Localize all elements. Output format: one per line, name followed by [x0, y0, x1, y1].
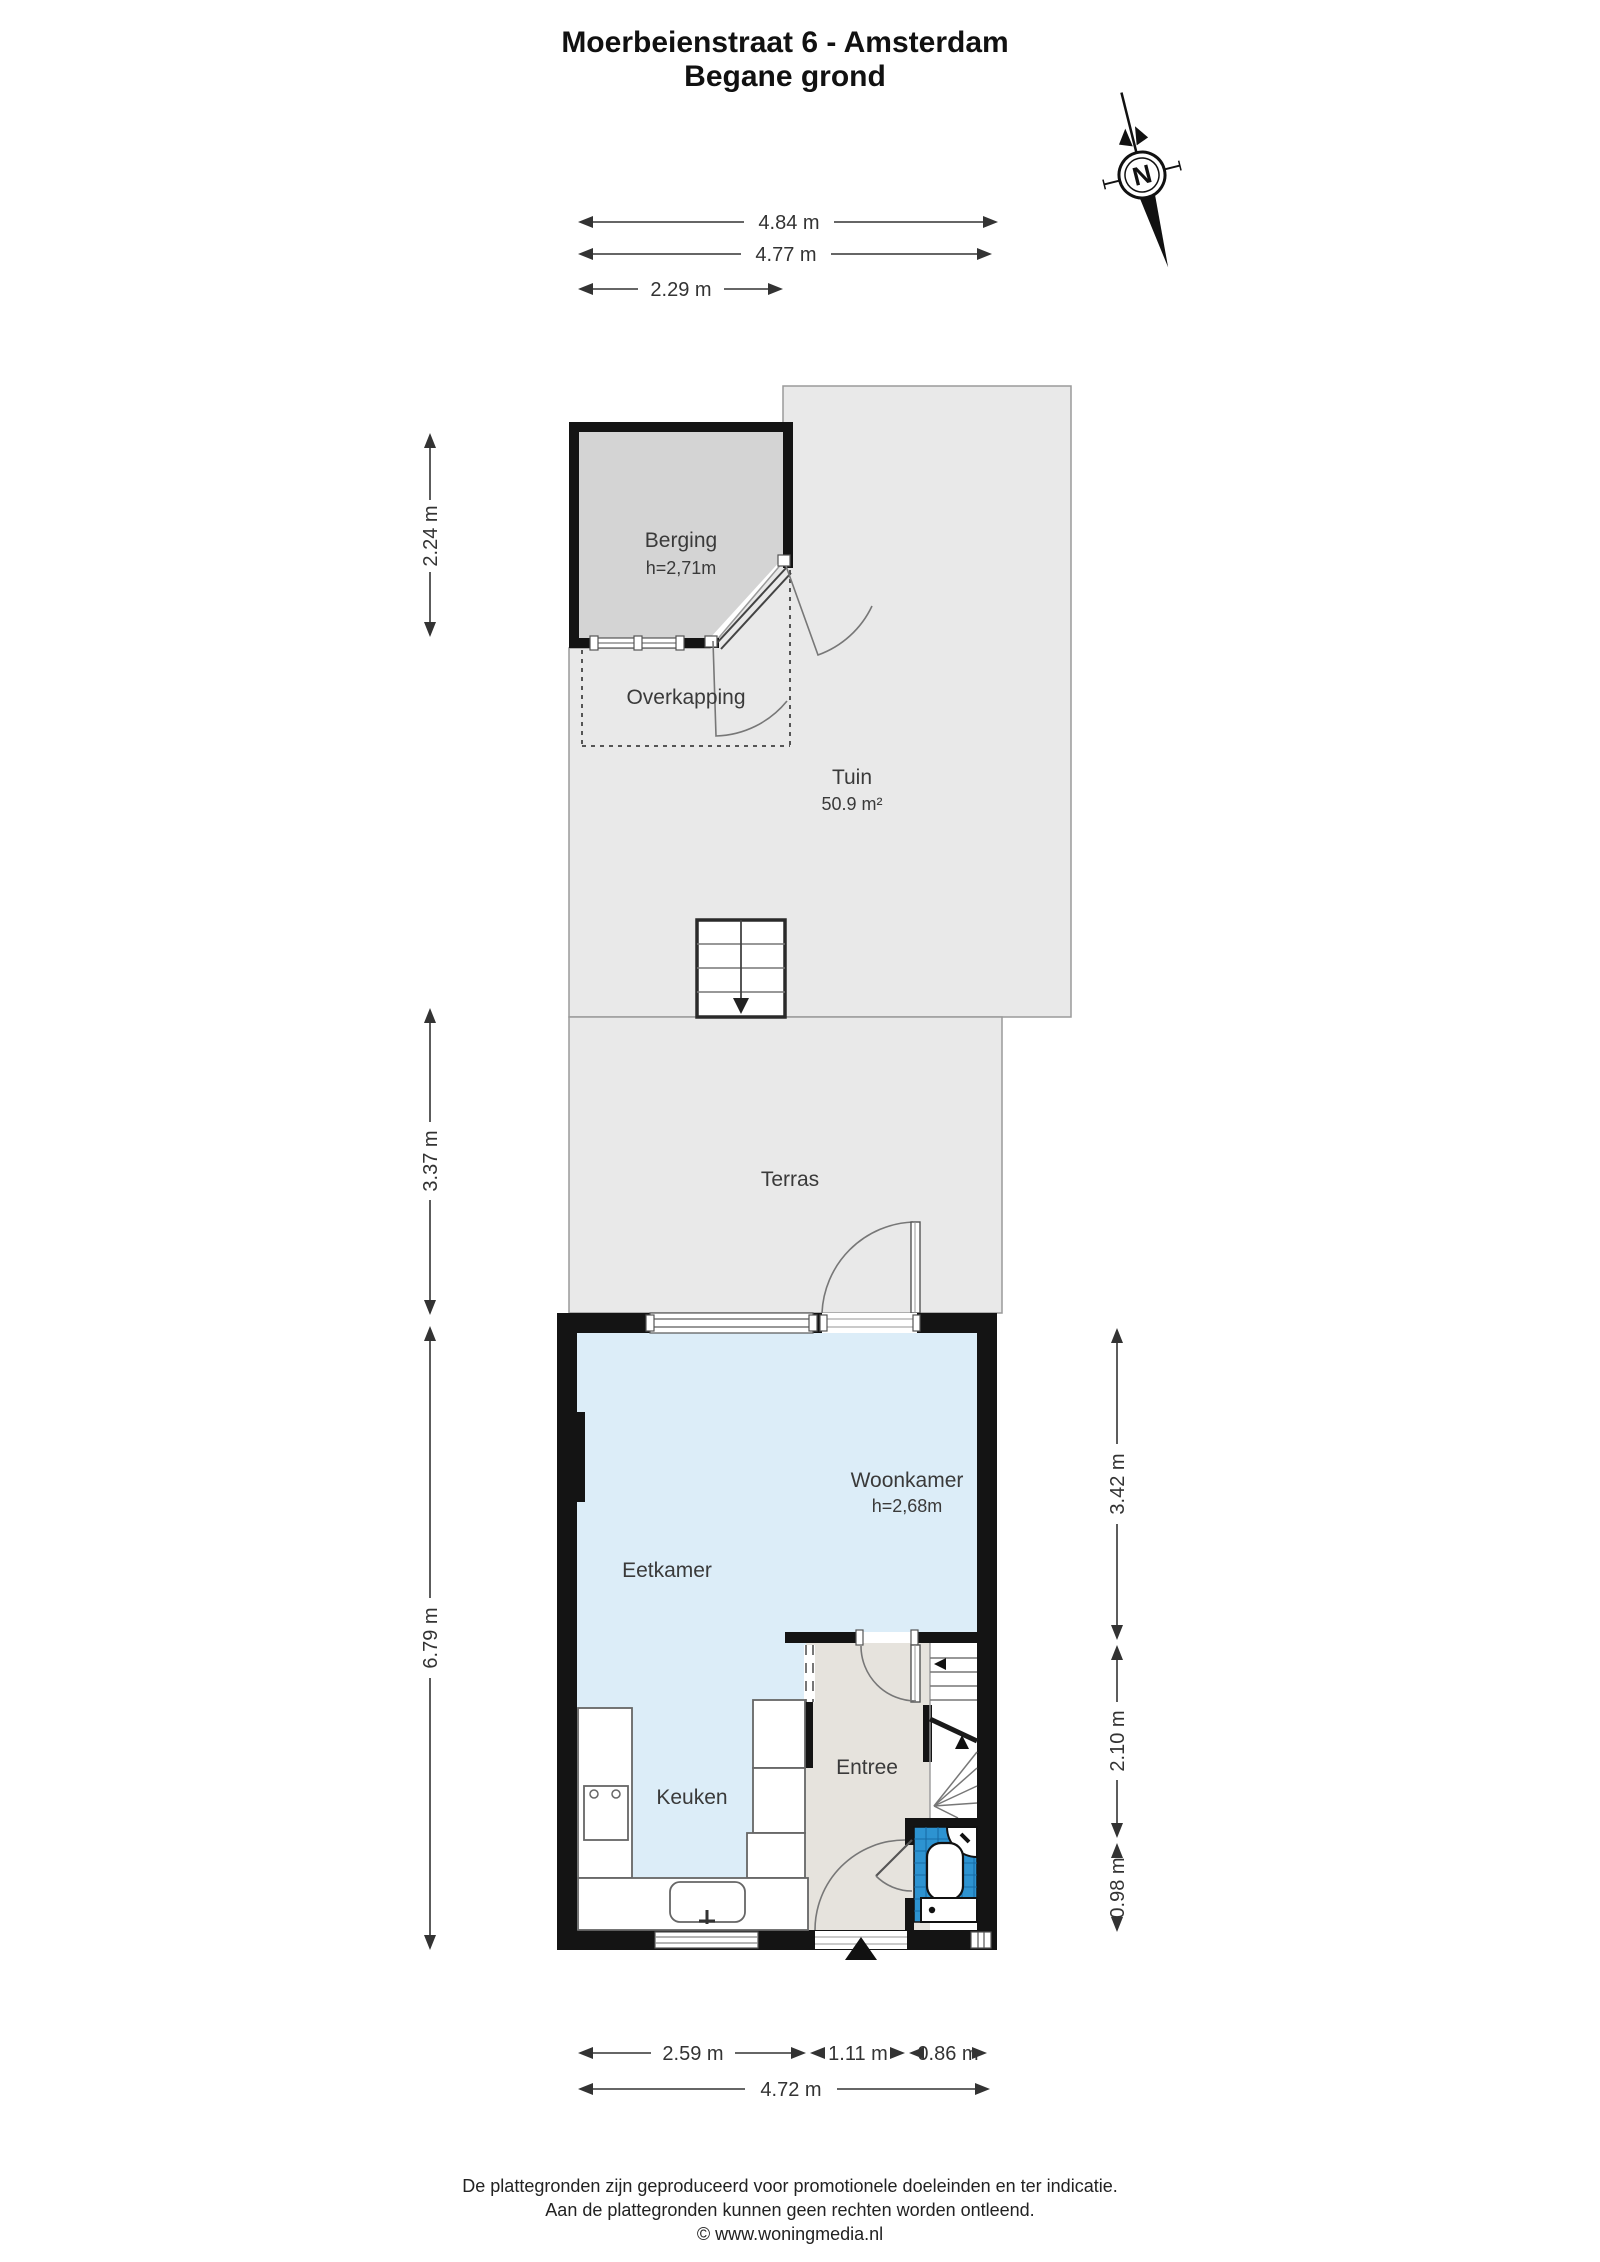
title-line1: Moerbeienstraat 6 - Amsterdam	[561, 26, 1008, 59]
garden-steps	[697, 920, 785, 1017]
hall-wall	[785, 1630, 997, 1645]
label-overkapping: Overkapping	[626, 686, 745, 709]
dim-bottom-2-59: 2.59 m	[578, 2043, 806, 2065]
dim-label: 0.86 m	[917, 2043, 978, 2065]
berging-window	[590, 636, 684, 650]
open-passage	[804, 1645, 815, 1702]
kitchen-window	[655, 1932, 758, 1948]
dim-bottom-4-72: 4.72 m	[578, 2079, 990, 2101]
dim-label: 4.84 m	[758, 212, 819, 234]
dim-right-2-10: 2.10 m	[1107, 1645, 1129, 1838]
label-eetkamer: Eetkamer	[622, 1559, 712, 1582]
dim-label: 3.37 m	[420, 1130, 442, 1191]
floor-plan-canvas: Moerbeienstraat 6 - Amsterdam Begane gro…	[0, 0, 1600, 2262]
label-keuken: Keuken	[656, 1786, 727, 1809]
dim-top-4-84: 4.84 m	[578, 212, 998, 234]
dim-top-4-77: 4.77 m	[578, 244, 992, 266]
dim-label: 1.11 m	[828, 2043, 888, 2065]
label-woonkamer: Woonkamer	[851, 1469, 964, 1492]
north-compass-icon: N	[1084, 83, 1203, 277]
label-tuin: Tuin	[832, 766, 872, 789]
page-title: Moerbeienstraat 6 - Amsterdam Begane gro…	[561, 26, 1008, 93]
dim-right-3-42: 3.42 m	[1107, 1328, 1129, 1640]
dim-label: 2.10 m	[1107, 1710, 1129, 1771]
dim-left-6-79: 6.79 m	[420, 1326, 442, 1950]
title-line2: Begane grond	[684, 60, 886, 93]
dim-left-3-37: 3.37 m	[420, 1008, 442, 1315]
terras-floor	[569, 1017, 1002, 1313]
dim-label: 2.59 m	[662, 2043, 723, 2065]
footer-disclaimer: De plattegronden zijn geproduceerd voor …	[462, 2176, 1117, 2244]
terras-door-opening	[820, 1313, 920, 1333]
wall-vent	[971, 1932, 991, 1948]
label-tuin-area: 50.9 m²	[821, 794, 882, 814]
label-woonkamer-height: h=2,68m	[872, 1496, 943, 1516]
dim-left-2-24: 2.24 m	[420, 433, 442, 637]
flush-button	[929, 1907, 935, 1913]
house	[557, 1222, 997, 1960]
dim-label: 2.29 m	[650, 279, 711, 301]
label-entree: Entree	[836, 1756, 898, 1779]
dim-top-2-29: 2.29 m	[578, 279, 783, 301]
toilet-bowl	[927, 1843, 963, 1900]
label-berging: Berging	[645, 529, 717, 552]
dim-label: 4.72 m	[760, 2079, 821, 2101]
dim-bottom-0-86: 0.86 m	[909, 2043, 987, 2065]
dim-bottom-1-11: 1.11 m	[810, 2043, 905, 2065]
entree-left-wall	[805, 1702, 813, 1768]
dim-label: 3.42 m	[1107, 1453, 1129, 1514]
dim-label: 6.79 m	[420, 1607, 442, 1668]
label-berging-height: h=2,71m	[646, 558, 717, 578]
dim-label: 0.98 m	[1107, 1857, 1129, 1918]
footer-line1: De plattegronden zijn geproduceerd voor …	[462, 2176, 1117, 2196]
dim-label: 2.24 m	[420, 505, 442, 566]
footer-credit: © www.woningmedia.nl	[697, 2224, 883, 2244]
dim-label: 4.77 m	[755, 244, 816, 266]
dim-right-0-98: 0.98 m	[1107, 1843, 1129, 1932]
label-terras: Terras	[761, 1168, 819, 1191]
footer-line2: Aan de plattegronden kunnen geen rechten…	[545, 2200, 1034, 2220]
living-room-window	[646, 1313, 817, 1333]
